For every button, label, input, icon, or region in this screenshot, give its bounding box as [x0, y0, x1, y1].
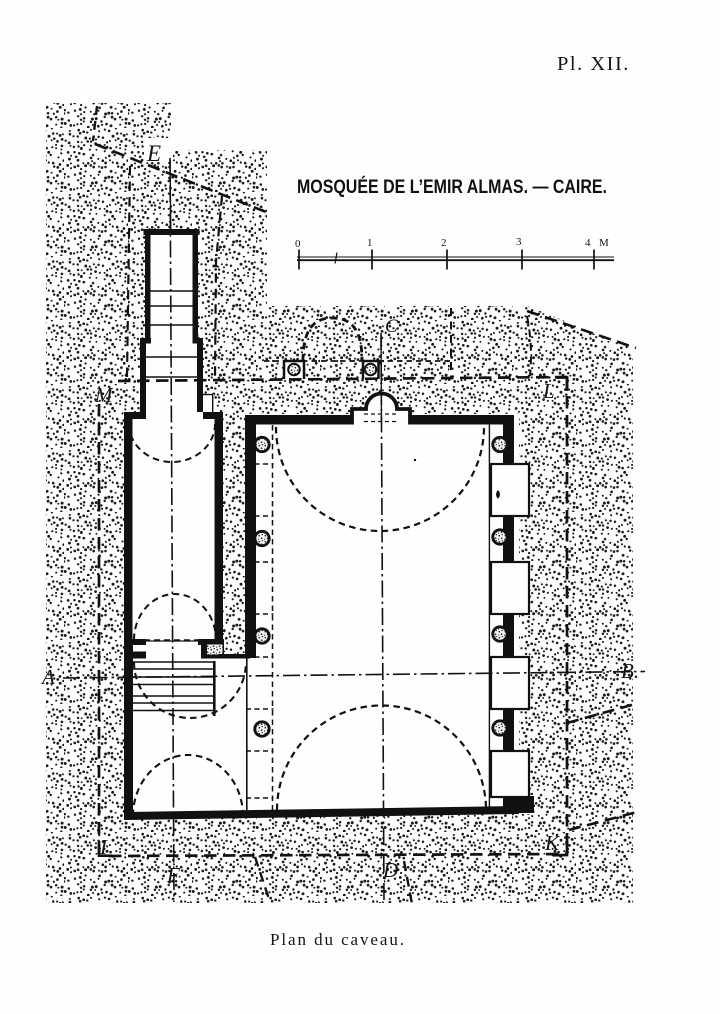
svg-text:L: L [542, 379, 555, 403]
svg-text:MOSQUÉE DE L’EMIR ALMAS. — CAI: MOSQUÉE DE L’EMIR ALMAS. — CAIRE. [297, 175, 607, 198]
svg-text:4: 4 [585, 237, 591, 249]
svg-text:E: E [146, 141, 161, 166]
svg-text:0: 0 [295, 238, 301, 250]
svg-text:I: I [99, 835, 108, 859]
svg-text:1: 1 [367, 237, 373, 249]
svg-text:Plan du caveau.: Plan du caveau. [270, 930, 404, 949]
svg-text:C: C [385, 316, 398, 337]
svg-text:3: 3 [516, 236, 522, 248]
svg-text:K: K [544, 831, 560, 855]
svg-text:B.: B. [621, 659, 639, 683]
svg-text:A: A [40, 665, 55, 689]
svg-text:D: D [382, 858, 398, 882]
svg-text:F: F [166, 863, 180, 887]
svg-text:M: M [599, 237, 609, 249]
svg-text:2: 2 [441, 237, 447, 249]
svg-text:Pl. XII.: Pl. XII. [557, 53, 630, 75]
svg-text:M: M [94, 383, 114, 407]
